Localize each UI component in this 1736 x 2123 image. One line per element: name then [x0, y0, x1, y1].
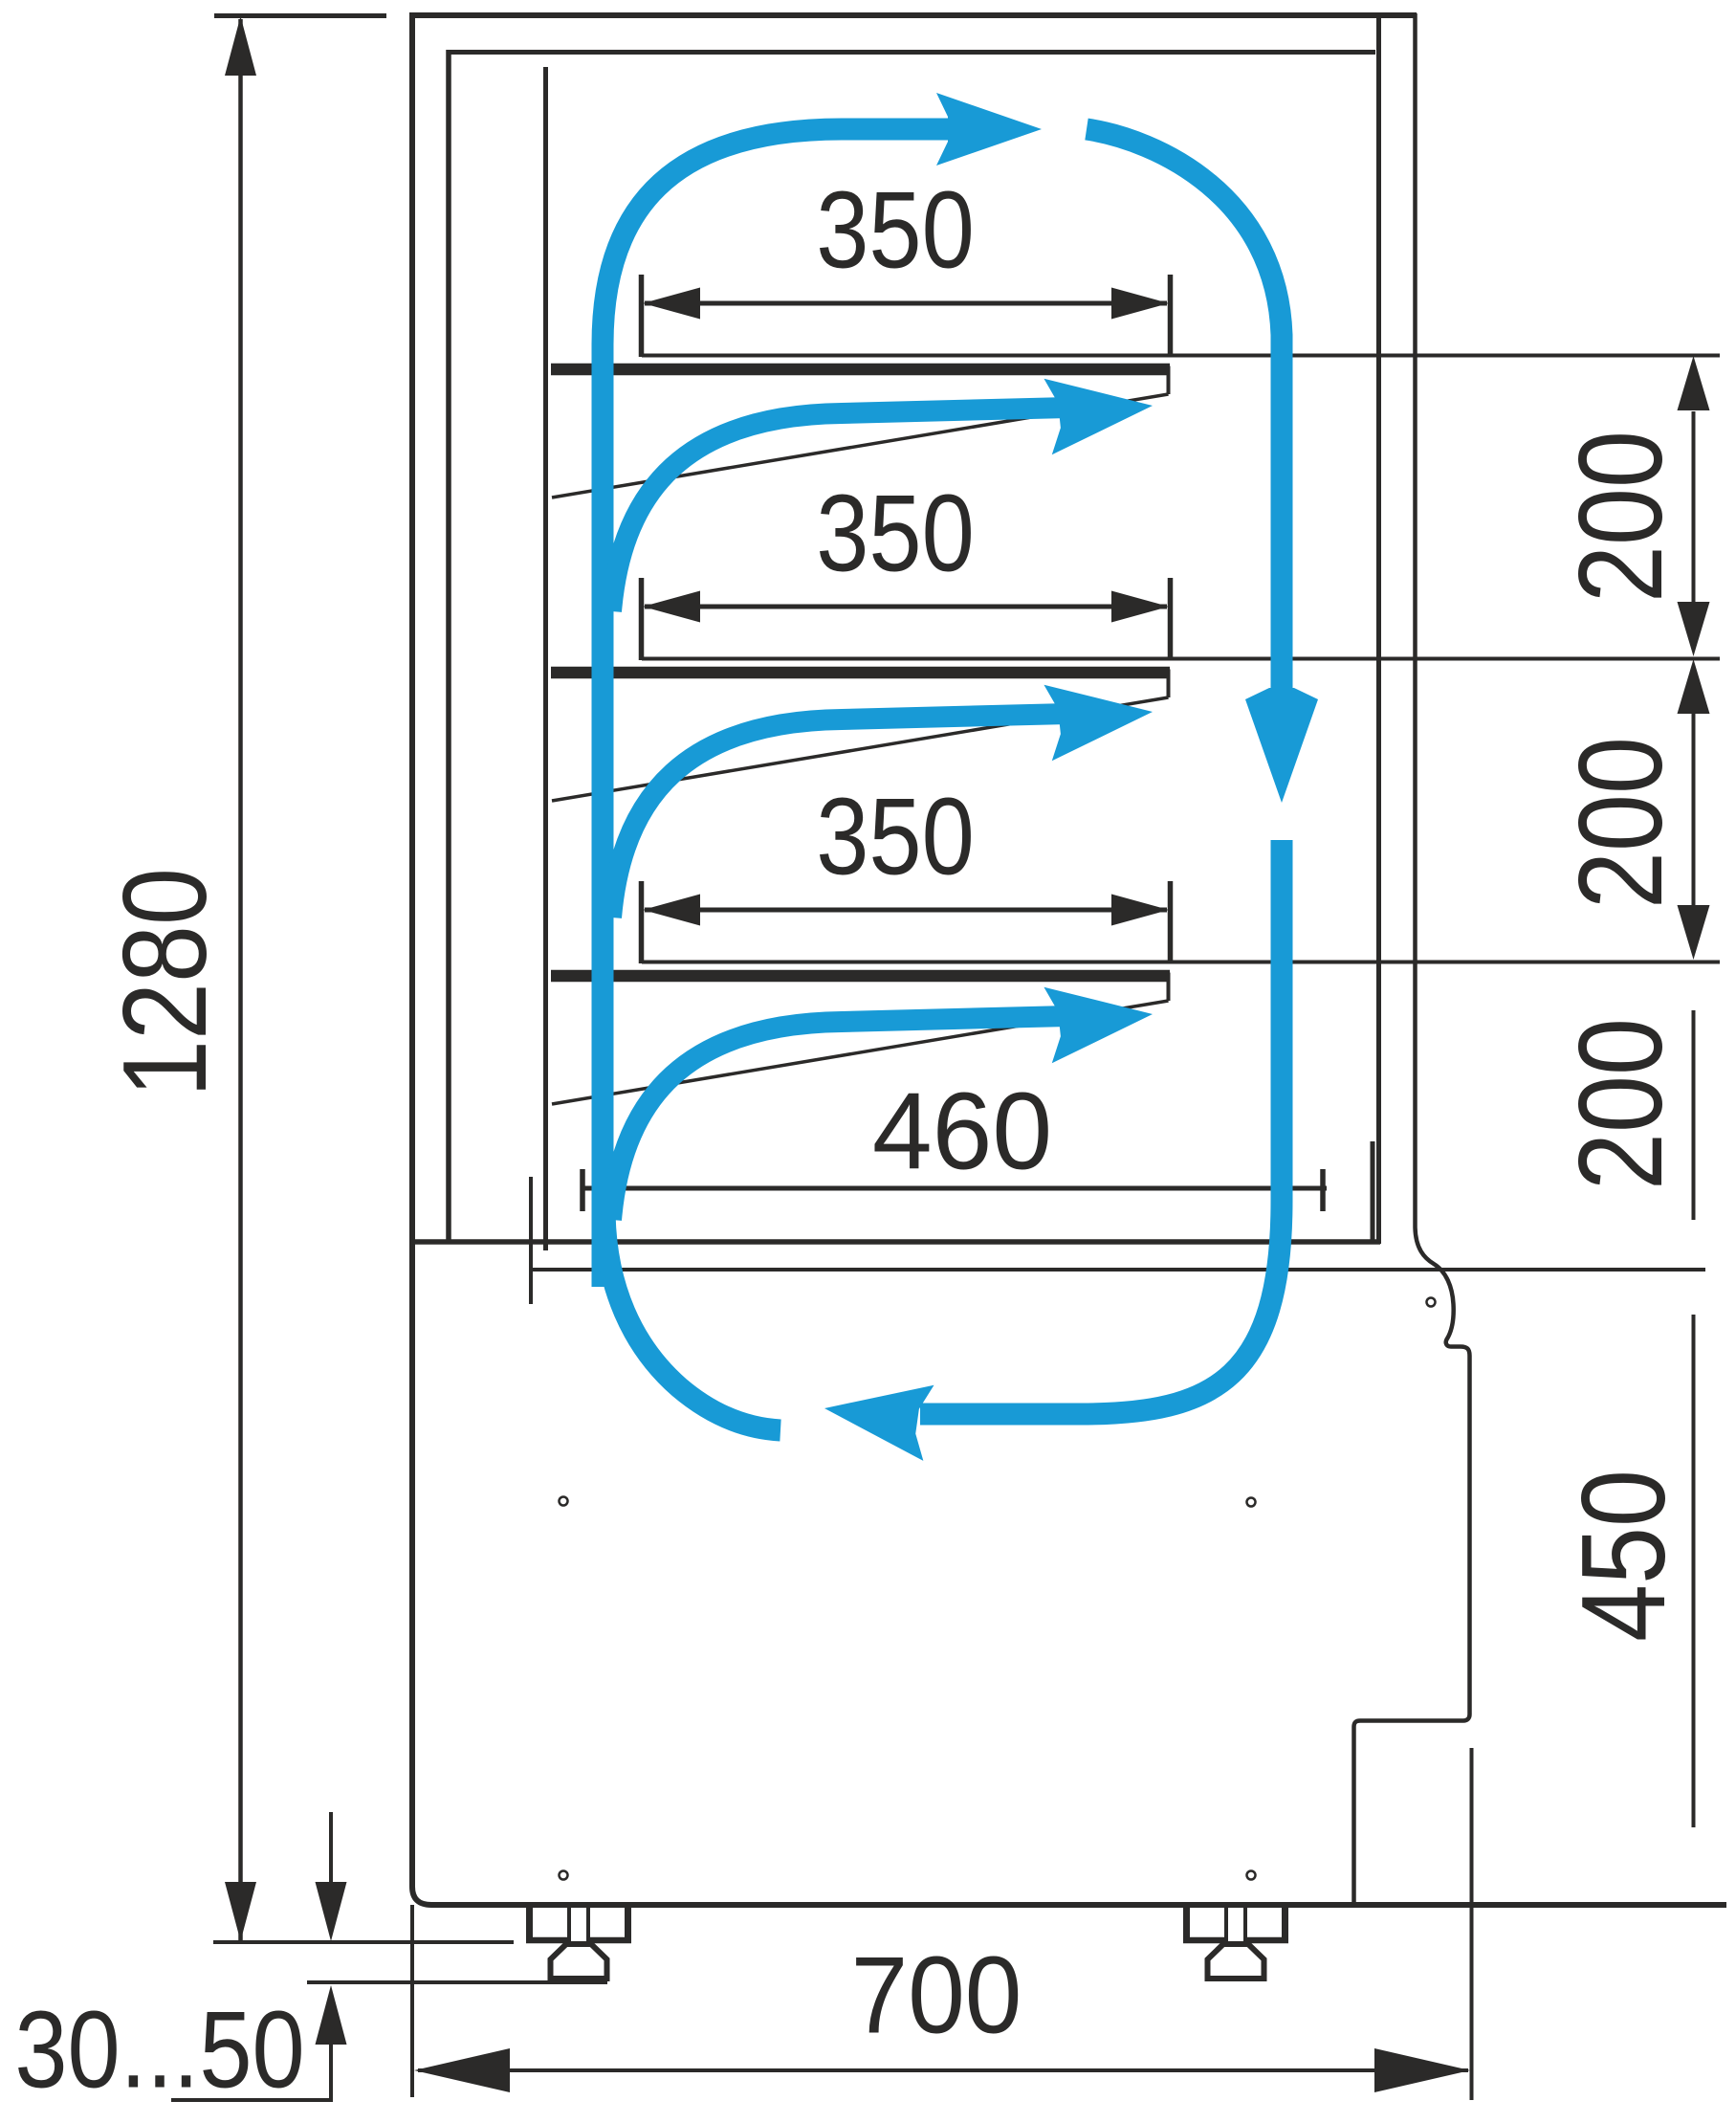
svg-text:200: 200	[1554, 1018, 1687, 1190]
svg-text:1280: 1280	[99, 868, 231, 1097]
svg-text:200: 200	[1554, 737, 1687, 909]
svg-text:350: 350	[816, 168, 974, 291]
svg-text:460: 460	[872, 1071, 1052, 1193]
svg-text:350: 350	[816, 472, 974, 594]
svg-text:200: 200	[1554, 431, 1687, 603]
svg-text:30...50: 30...50	[14, 1988, 304, 2111]
svg-text:450: 450	[1557, 1470, 1690, 1642]
svg-text:700: 700	[851, 1935, 1022, 2056]
svg-text:350: 350	[816, 775, 974, 897]
